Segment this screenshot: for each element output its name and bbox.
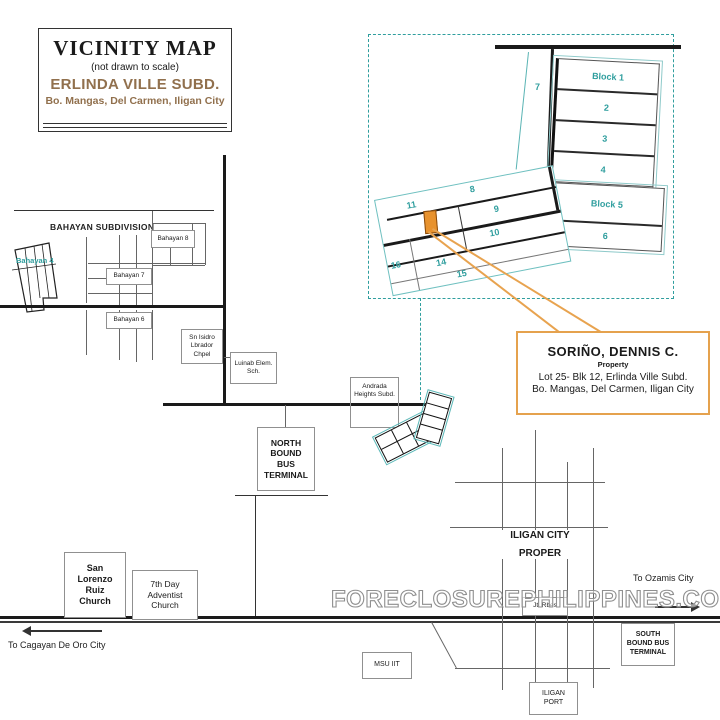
lot-15-label: 15 (456, 268, 468, 280)
scale-note: (not drawn to scale) (39, 62, 231, 73)
adventist-label: 7th Day Adventist Church (139, 579, 191, 611)
property-callout: SORIÑO, DENNIS C. Property Lot 25- Blk 1… (516, 331, 710, 415)
west-arrow-icon (22, 626, 106, 636)
street-line (205, 223, 206, 265)
street-line (170, 248, 171, 265)
road-bahayan (0, 305, 226, 308)
grid-line (455, 668, 610, 669)
diagonal-road (431, 622, 457, 668)
lot-7-label: 7 (535, 82, 540, 92)
lot-4-label: 4 (553, 152, 654, 186)
north-terminal-label: NORTH BOUND BUS TERMINAL (261, 438, 311, 481)
port-box: ILIGAN PORT (529, 682, 578, 715)
bahayan-6-box: Bahayan 6 (106, 312, 152, 329)
subdivision-name: ERLINDA VILLE SUBD. (39, 76, 231, 93)
south-terminal-box: SOUTH BOUND BUS TERMINAL (621, 623, 675, 666)
school-label: Luinab Elem. Sch. (232, 360, 275, 376)
block-1-column: Block 1 2 3 4 (550, 58, 660, 187)
street-line (152, 265, 205, 266)
title-box: VICINITY MAP (not drawn to scale) ERLIND… (38, 28, 232, 132)
lot-9-label: 9 (493, 203, 500, 214)
adventist-box: 7th Day Adventist Church (132, 570, 198, 620)
city-proper-line2: PROPER (500, 548, 580, 559)
lot-8-label: 8 (469, 184, 476, 195)
road-terminal-vertical (255, 495, 256, 619)
site-sketch-arm (416, 392, 452, 445)
vicinity-map: VICINITY MAP (not drawn to scale) ERLIND… (0, 0, 720, 720)
bahayan-7-label: Bahayan 7 (113, 272, 144, 280)
to-cdo-label: To Cagayan De Oro City (8, 640, 106, 650)
lot-10-label: 10 (489, 227, 501, 239)
grid-line (535, 430, 536, 715)
to-ozamis-label: To Ozamis City (633, 573, 694, 583)
bahayan-8-box: Bahayan 8 (151, 230, 195, 248)
subdivision-address: Bo. Mangas, Del Carmen, Iligan City (39, 95, 231, 107)
street-line (152, 211, 153, 306)
highway-edge (0, 621, 720, 623)
site-sketch (374, 396, 460, 464)
street-line (152, 310, 153, 360)
msu-box: MSU IIT (362, 652, 412, 679)
owner-name: SORIÑO, DENNIS C. (518, 344, 708, 359)
north-terminal-box: NORTH BOUND BUS TERMINAL (257, 427, 315, 491)
property-label: Property (518, 360, 708, 369)
street-line (88, 263, 205, 264)
grid-line (567, 462, 568, 700)
bahayan-6-label: Bahayan 6 (113, 316, 144, 324)
double-rule (43, 123, 227, 128)
watermark: FORECLOSUREPHILIPPINES.COM (331, 586, 720, 614)
property-address-2: Bo. Mangas, Del Carmen, Iligan City (518, 384, 708, 395)
street-line (86, 310, 87, 355)
lot-11-label: 11 (406, 199, 417, 211)
block-5-label: Block 5 (550, 183, 664, 227)
grid-line (502, 448, 503, 690)
grid-line (593, 448, 594, 688)
msu-label: MSU IIT (374, 661, 400, 670)
street-line (88, 293, 152, 294)
street-line (152, 223, 205, 224)
bahayan-title: BAHAYAN SUBDIVISION (50, 222, 154, 232)
road-vertical-main (223, 155, 226, 405)
chapel-label: Sn Isidro Lbrador Chpel (183, 334, 221, 358)
lot-line (409, 239, 420, 290)
lot-14-label: 14 (435, 256, 447, 268)
inset-connector-line (420, 298, 421, 400)
street-line (86, 237, 87, 303)
bahayan-4-label: Bahayan 4 (16, 256, 54, 265)
san-lorenzo-box: San Lorenzo Ruiz Church (64, 552, 126, 618)
connector-line (285, 405, 286, 428)
port-label: ILIGAN PORT (539, 690, 569, 708)
bahayan-7-box: Bahayan 7 (106, 268, 152, 285)
lot-16-label: 16 (390, 259, 402, 271)
city-proper-line1: ILIGAN CITY (500, 530, 580, 541)
grid-line (450, 527, 608, 528)
inset-road-top (495, 45, 681, 49)
road-terminal (235, 495, 328, 496)
san-lorenzo-label: San Lorenzo Ruiz Church (71, 563, 119, 608)
block-1-label: Block 1 (557, 59, 658, 95)
bahayan-8-label: Bahayan 8 (157, 235, 188, 243)
map-title: VICINITY MAP (39, 36, 231, 61)
chapel-box: Sn Isidro Lbrador Chpel (181, 329, 223, 364)
property-address-1: Lot 25- Blk 12, Erlinda Ville Subd. (518, 372, 708, 383)
city-proper-label: ILIGAN CITY PROPER (500, 530, 580, 559)
grid-line (455, 482, 605, 483)
school-box: Luinab Elem. Sch. (230, 352, 277, 384)
south-terminal-label: SOUTH BOUND BUS TERMINAL (626, 631, 670, 657)
street-line (14, 210, 214, 211)
